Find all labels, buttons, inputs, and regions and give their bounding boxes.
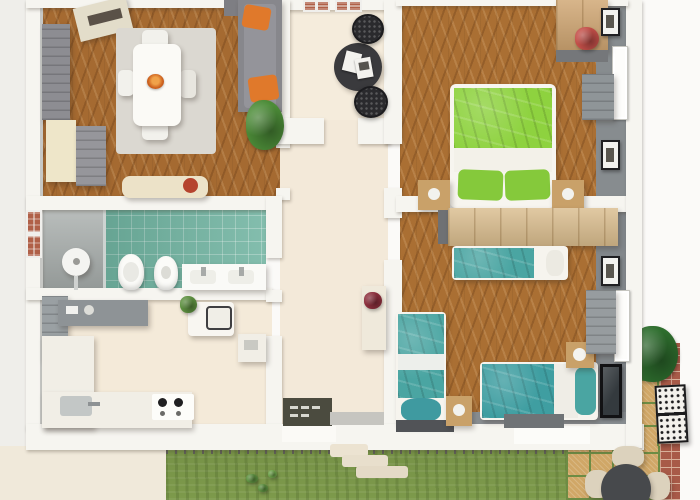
- b2-bed-a-duvet: [454, 248, 534, 278]
- stove-burner-1: [158, 398, 167, 407]
- hall-console-flowers: [364, 292, 382, 309]
- hall-doormat: [283, 398, 332, 426]
- wall-corridor-west-lower: [266, 336, 282, 428]
- hall-doormat-dash-4: [290, 414, 298, 417]
- b1-lamp-left: [428, 188, 440, 200]
- b1-pillow-left: [457, 169, 503, 201]
- stove-knob-1: [160, 411, 165, 416]
- b1-lamp-right: [562, 188, 574, 200]
- hall-doormat-dash-3: [312, 406, 320, 409]
- stove: [152, 394, 194, 420]
- balcony-stool-north: [352, 14, 384, 44]
- kitchen-counter-east-item: [244, 340, 258, 350]
- garden-lattice-gate: [655, 384, 689, 444]
- sofa-pillow-2: [247, 74, 279, 103]
- balcony-stool-south: [354, 86, 388, 118]
- stove-knob-2: [176, 411, 181, 416]
- lr-cabinet: [46, 120, 76, 182]
- hall-entry-mat: [330, 412, 384, 425]
- stove-burner-2: [174, 398, 183, 407]
- dining-chair-west: [118, 70, 134, 96]
- garden-sprig-3: [268, 470, 277, 478]
- balcony-window-1: [303, 0, 330, 12]
- hall-doormat-dash-1: [290, 406, 298, 409]
- b1-wall-art-1: [601, 8, 620, 36]
- lr-bench-cushion: [183, 178, 198, 193]
- fruit-bowl: [147, 74, 164, 89]
- b2-wardrobe: [448, 208, 618, 246]
- b1-bed-duvet: [454, 88, 552, 150]
- kitchen-sink: [60, 396, 92, 416]
- b1-bed-fold: [454, 148, 552, 172]
- b2-wall-art: [601, 256, 620, 286]
- bedroom-1-window: [612, 46, 628, 120]
- b2-bed-c-pillow: [575, 367, 596, 415]
- hall-doormat-dash-5: [301, 414, 309, 417]
- garden-sprig-2: [258, 484, 268, 492]
- sofa-pillow-1: [241, 4, 272, 31]
- entrance-step-3: [356, 466, 408, 478]
- balcony-window-2: [335, 0, 362, 12]
- front-door: [282, 426, 336, 442]
- kitchen-island-item-1: [66, 306, 78, 314]
- b2-bed-c-duvet: [482, 364, 554, 418]
- lr-shelf: [76, 126, 106, 186]
- b2-dresser: [586, 290, 616, 354]
- shower-head-center: [73, 258, 80, 265]
- bedroom-2-window: [614, 290, 630, 362]
- kitchen-plant: [180, 296, 197, 313]
- toilet-seat: [123, 262, 139, 282]
- sink-faucet-1: [201, 267, 206, 276]
- b1-desk-flowers: [575, 27, 599, 50]
- dining-chair-east: [180, 70, 196, 98]
- bathroom-window: [26, 210, 42, 258]
- kitchen-faucet: [88, 402, 100, 406]
- b1-wall-art-2: [601, 140, 620, 170]
- b2-tv: [600, 364, 622, 418]
- lr-plant: [246, 100, 284, 150]
- hall-doormat-dash-2: [301, 406, 309, 409]
- b2-bed-b-fold: [398, 354, 444, 370]
- sink-faucet-2: [239, 267, 244, 276]
- shower-arm: [74, 276, 78, 290]
- wall-corridor-west-mid: [266, 290, 282, 302]
- b2-bed-a-pillow: [546, 250, 564, 276]
- b2-bed-b-pillow: [401, 398, 441, 422]
- wall-corridor-east-upper: [384, 0, 402, 144]
- b2-lamp-b: [453, 404, 465, 416]
- wall-right-outer: [626, 0, 642, 448]
- b2-lamp-c: [573, 348, 586, 361]
- bedroom-2-terrace-door: [514, 426, 590, 444]
- kitchen-island-item-2: [84, 305, 94, 315]
- balcony-magazine-print: [358, 61, 369, 71]
- floor-plan-render: [0, 0, 700, 500]
- bottom-left-ground: [0, 446, 172, 500]
- kitchen-chair: [206, 306, 232, 330]
- b2-rug: [504, 414, 564, 428]
- b1-dresser: [582, 74, 614, 120]
- b1-pillow-right: [504, 169, 550, 201]
- shower-glass: [103, 204, 106, 294]
- wall-corridor-west-upper: [266, 196, 282, 258]
- hallway-floor: [280, 120, 388, 426]
- lr-wardrobe: [42, 24, 70, 120]
- wall-living-south: [26, 196, 278, 210]
- garden-sprig-1: [246, 474, 258, 483]
- b1-desk-side: [556, 50, 608, 62]
- bidet-basin: [161, 266, 171, 279]
